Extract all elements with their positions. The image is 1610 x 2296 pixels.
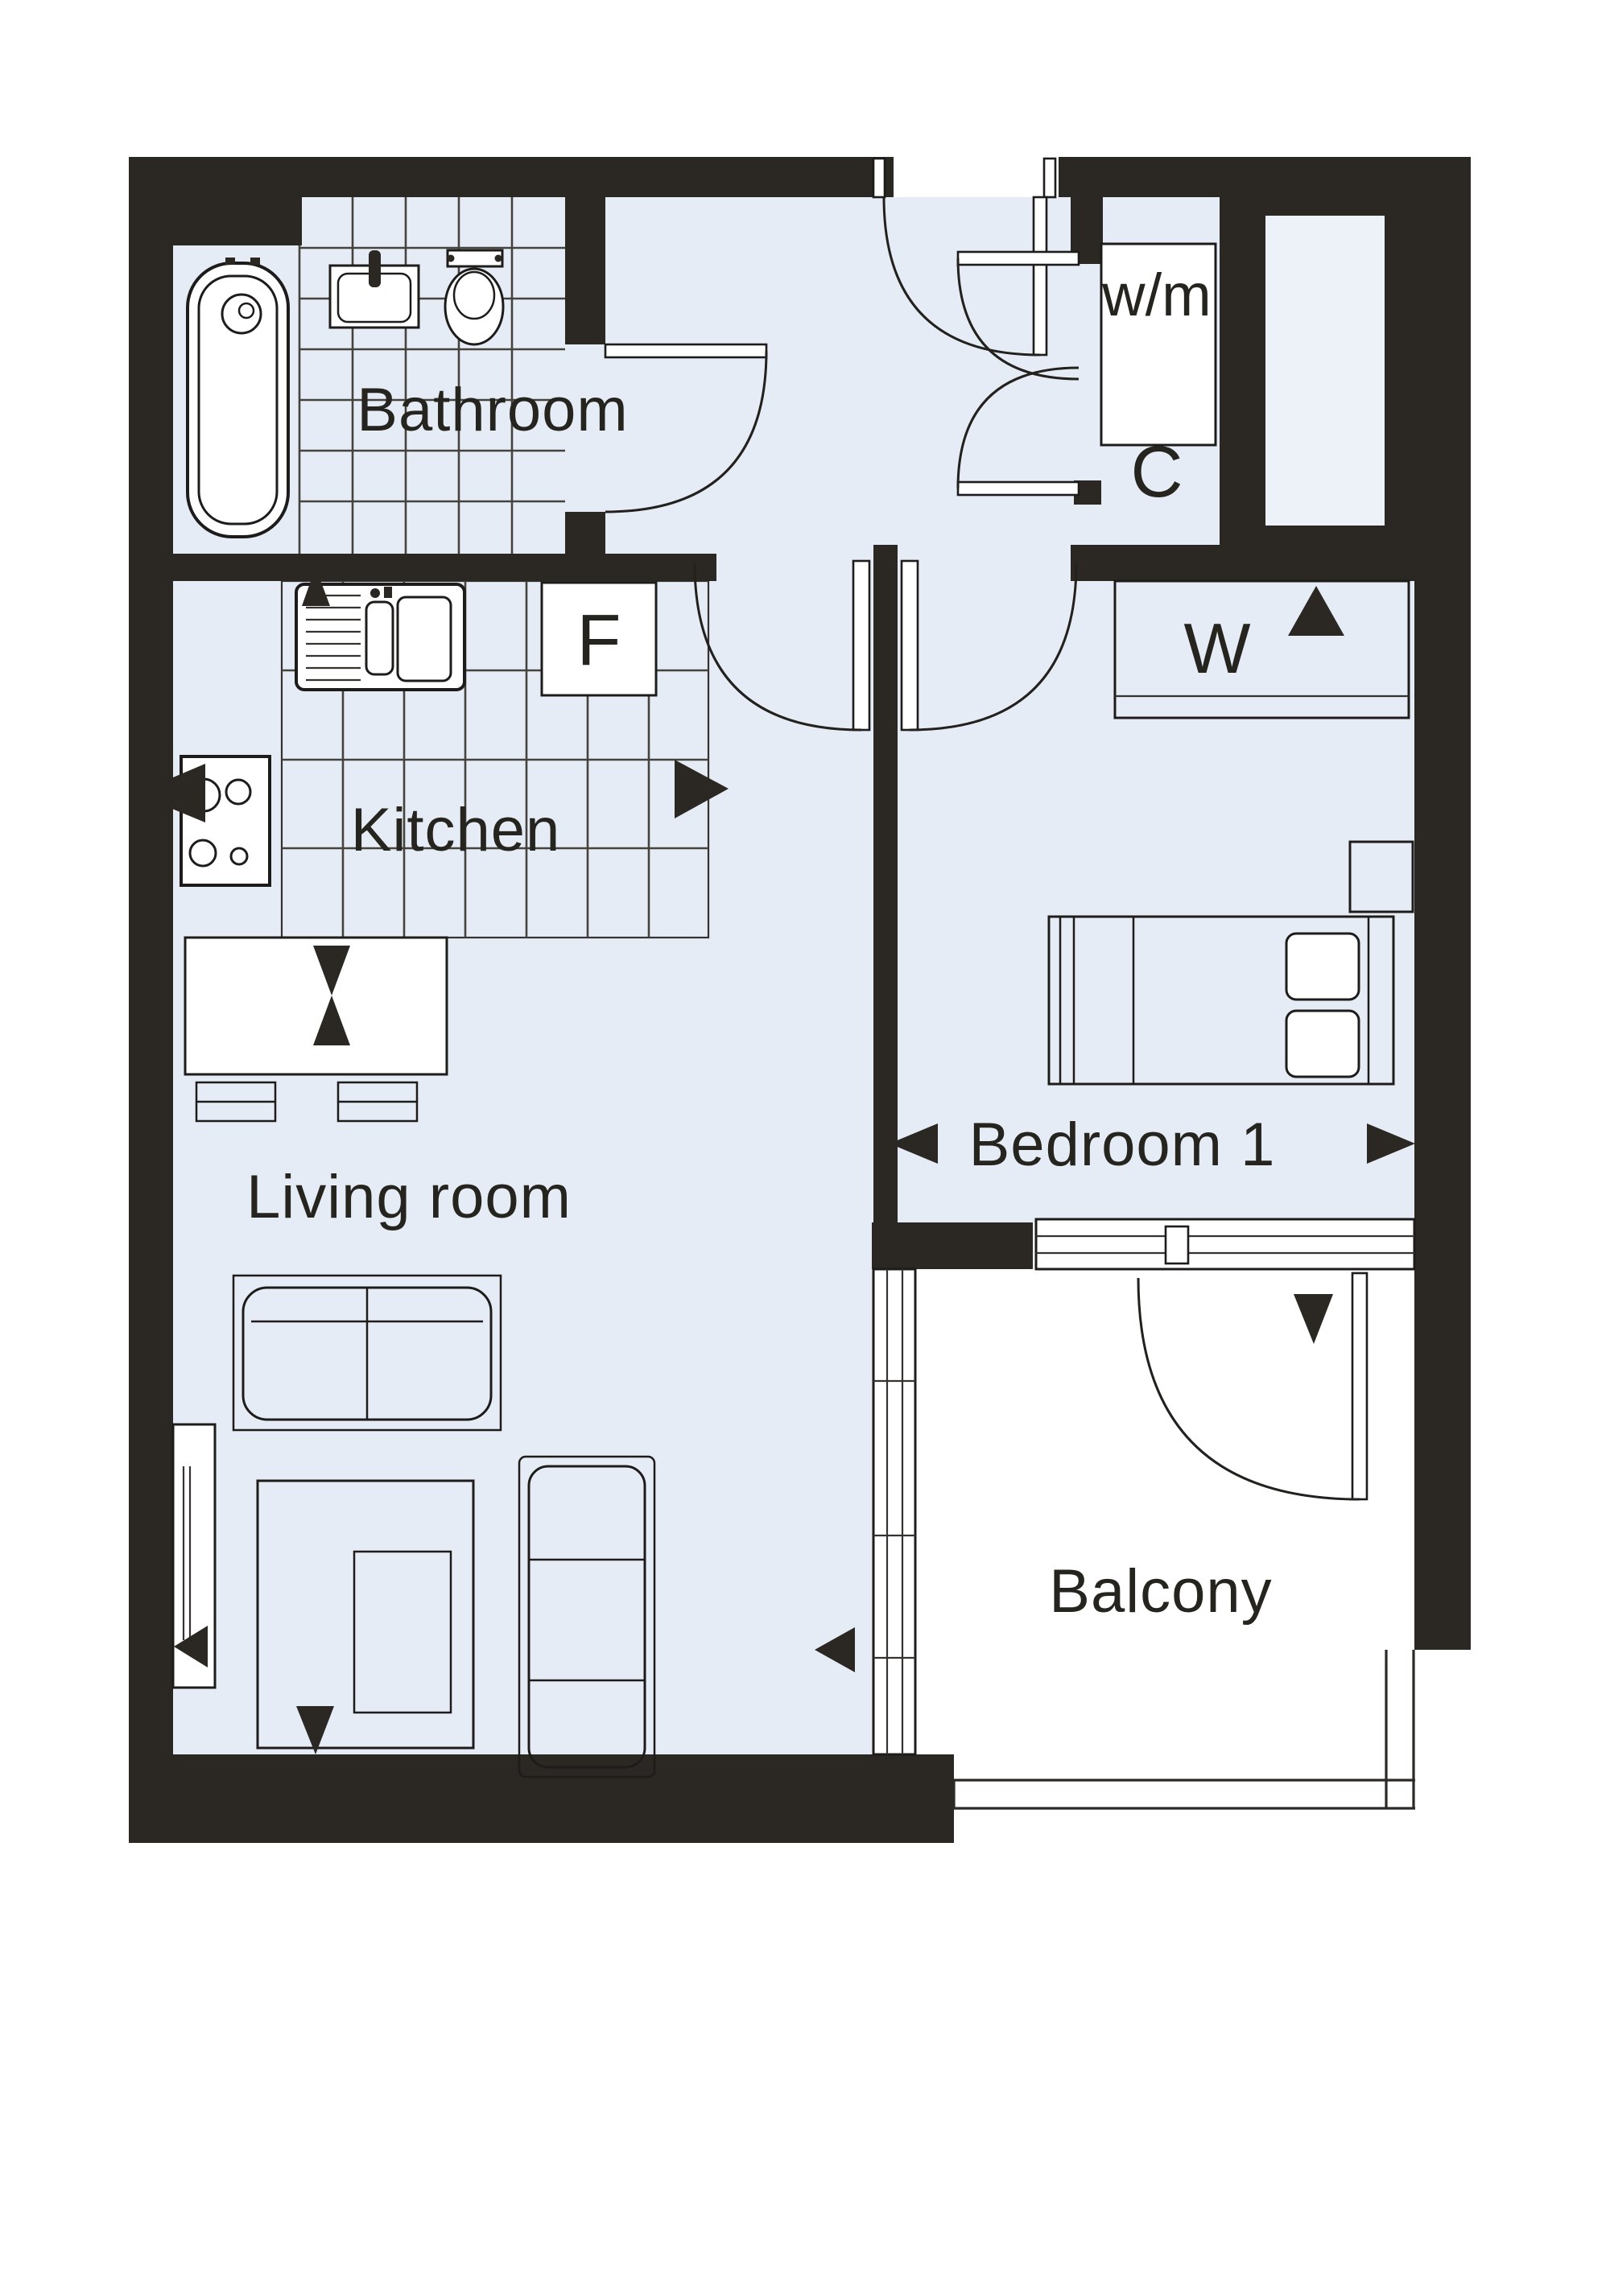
wardrobe-label: W [1183, 608, 1250, 688]
living-room-door-leaf [853, 561, 869, 730]
bathtub [188, 258, 288, 537]
toilet [445, 250, 503, 344]
toilet-fitting-icon [495, 255, 502, 262]
balcony-floor [898, 1269, 1414, 1754]
toilet-bowl [445, 269, 503, 344]
bathtub-tap-icon [250, 258, 260, 265]
wall-top-right [1059, 157, 1471, 197]
cupboard-door-leaf-top [958, 252, 1079, 265]
wall-bathroom-kitchen-divider [173, 554, 716, 581]
balcony-door-leaf [1352, 1273, 1367, 1499]
floor-plan-drawing: F w/m C [0, 0, 1610, 2296]
wall-left [129, 157, 173, 1843]
wall-top-left [129, 157, 894, 197]
sink-tap-icon [370, 588, 380, 598]
toilet-cistern [448, 250, 502, 266]
cupboard-label: C [1131, 432, 1183, 513]
living-room-label: Living room [246, 1163, 572, 1231]
washing-machine: w/m [1101, 244, 1216, 445]
bed-pillow [1286, 1011, 1359, 1077]
entrance-door-jamb [873, 159, 885, 197]
fridge: F [542, 583, 656, 695]
bedroom-balcony-window [1036, 1219, 1414, 1269]
bedroom-door-leaf [902, 561, 918, 730]
wall-bathroom-east-upper [565, 197, 605, 344]
entrance-door-leaf [1034, 197, 1046, 355]
toilet-fitting-icon [448, 255, 455, 262]
wall-bottom [129, 1754, 954, 1843]
entrance-door-jamb [1044, 159, 1055, 197]
wall-bath-top-block [173, 197, 302, 245]
living-balcony-window [873, 1269, 915, 1754]
wall-bedroom-north [1071, 545, 1414, 581]
bed-pillow [1286, 934, 1359, 1000]
sink-tap-base-icon [384, 587, 392, 598]
balcony-door-jamb [1166, 1226, 1188, 1263]
wall-living-bedroom-divider [873, 545, 898, 1222]
cupboard-door-leaf-bottom [958, 482, 1079, 495]
bedroom-label: Bedroom 1 [969, 1111, 1276, 1179]
bathroom-label: Bathroom [357, 376, 629, 444]
service-shaft [1265, 216, 1385, 526]
kitchen-label: Kitchen [351, 796, 561, 864]
basin-tap-icon [369, 250, 381, 287]
floor-plan-page: F w/m C [0, 0, 1610, 2296]
wall-bedroom-south [872, 1222, 1033, 1269]
wall-right [1414, 157, 1471, 1650]
dining-table [185, 938, 447, 1074]
bathroom-door-leaf [605, 344, 766, 357]
balcony-label: Balcony [1049, 1557, 1272, 1626]
bathtub-tap-icon [225, 258, 235, 265]
bathtub-outline [188, 263, 288, 537]
washing-machine-label: w/m [1101, 262, 1212, 328]
fridge-label: F [577, 600, 621, 681]
